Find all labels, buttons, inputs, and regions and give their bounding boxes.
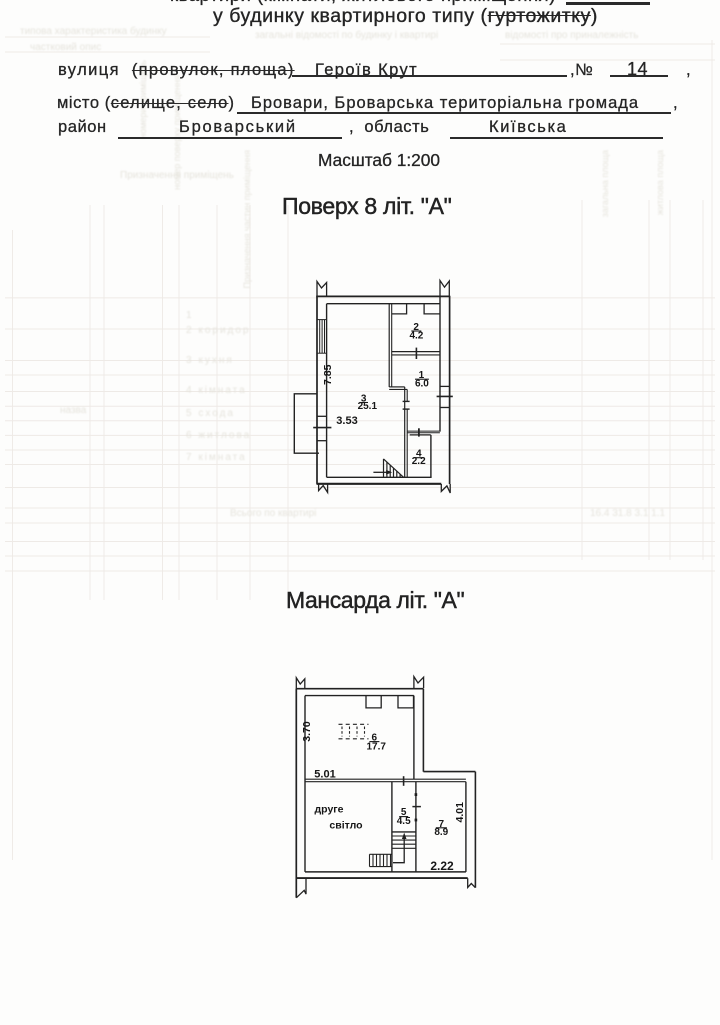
svg-text:друге: друге xyxy=(315,803,344,815)
svg-text:світло: світло xyxy=(329,819,362,831)
svg-text:7.85: 7.85 xyxy=(322,364,334,385)
svg-text:5.01: 5.01 xyxy=(314,768,335,780)
svg-text:3.53: 3.53 xyxy=(336,415,357,427)
svg-text:8.9: 8.9 xyxy=(434,827,448,838)
svg-text:4.01: 4.01 xyxy=(454,802,466,823)
svg-text:4.2: 4.2 xyxy=(409,331,423,342)
svg-text:17.7: 17.7 xyxy=(366,741,386,752)
svg-text:6.0: 6.0 xyxy=(415,378,429,389)
svg-text:3.70: 3.70 xyxy=(301,721,313,742)
svg-text:4.5: 4.5 xyxy=(397,816,411,827)
svg-text:2.22: 2.22 xyxy=(430,859,454,873)
